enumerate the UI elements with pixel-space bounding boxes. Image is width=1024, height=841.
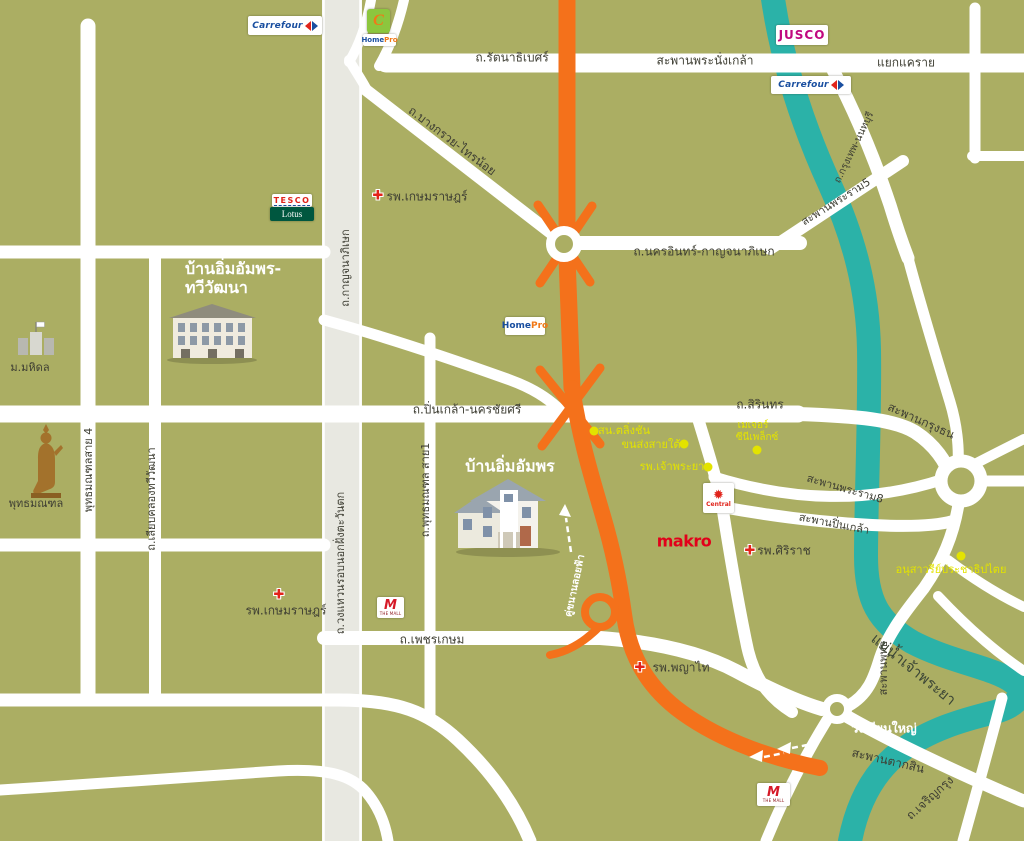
buddha-statue-icon <box>24 424 68 500</box>
lotus-logo: Lotus <box>270 207 314 221</box>
carrefour-mark-icon <box>831 80 844 90</box>
label-phutthamonthon-park: พุทธมณฑล <box>9 498 64 510</box>
c-badge-letter: C <box>373 12 384 30</box>
label-phutthamonthon-sai4-road: พุทธมณฑลสาย 4 <box>83 428 95 512</box>
label-kanchanaphisek-road: ถ.กาญจนาภิเษก <box>340 229 352 306</box>
label-southern-bus-terminal: ขนส่งสายใต้ <box>622 439 681 451</box>
label-western-outer-ring-road: ถ.วงแหวนรอบนอกฝั่งตะวันตก <box>335 492 347 634</box>
carrefour-logo-text: Carrefour <box>778 80 828 90</box>
label-pinklao-nakhonchaisi-road: ถ.ปิ่นเกล้า-นครชัยศรี <box>413 404 522 417</box>
label-kasem-rat-hospital-south: รพ.เกษมราษฎร์ <box>246 605 327 618</box>
makro-logo-text: makro <box>657 532 712 551</box>
label-liap-khlong-thawiwatthana-road: ถ.เลียบคลองทวีวัฒนา <box>146 447 158 550</box>
carrefour-logo-2: Carrefour <box>771 76 851 94</box>
krungthon-roundabout <box>941 461 981 501</box>
poi-dot-southern-terminal <box>680 440 689 449</box>
the-mall-logo-2: M THE MALL <box>757 783 790 806</box>
hospital-cross-icon: ✚ <box>373 189 384 204</box>
label-house-thawi-watthana-line2: ทวีวัฒนา <box>185 280 248 297</box>
label-taling-chan-police: สน.ตลิ่งชัน <box>598 425 650 437</box>
central-star-icon: ✹ <box>713 489 724 502</box>
label-wongwian-yai: วงเวียนใหญ่ <box>851 721 916 734</box>
the-mall-logo-1: M THE MALL <box>377 597 404 618</box>
label-major-cineplex-line2: ซีนีเพล็กซ์ <box>736 433 779 444</box>
label-house-im-amphon: บ้านอิ่มอัมพร <box>465 459 555 476</box>
central-logo: ✹ Central <box>703 483 734 513</box>
homepro-logo-mid: HomePro <box>505 317 545 335</box>
hospital-cross-icon: ✚ <box>635 661 646 676</box>
label-phetkasem-road: ถ.เพชรเกษม <box>400 634 465 647</box>
label-house-thawi-watthana-line1: บ้านอิ่มอัมพร- <box>185 261 281 278</box>
label-major-cineplex-line1: เมเจอร์ <box>738 421 769 432</box>
hospital-cross-icon: ✚ <box>274 588 285 603</box>
wongwian-yai-roundabout <box>826 698 848 720</box>
the-mall-logo-text: THE MALL <box>380 612 402 616</box>
jusco-logo: JUSCO <box>776 25 828 45</box>
label-democracy-monument: อนุสาวรีย์ประชาธิปไตย <box>896 564 1007 576</box>
label-kasem-rat-hospital-north: รพ.เกษมราษฎร์ <box>387 191 468 204</box>
label-phutthamonthon-sai1-road: ถ.พุทธมณฑล สาย1 <box>420 443 432 538</box>
tesco-logo-text: TESCO <box>274 196 311 206</box>
poi-dot-major-cineplex <box>753 446 762 455</box>
homepro-logo-top: HomePro <box>363 34 396 46</box>
route-map: ถ.รัตนาธิเบศร์ สะพานพระนั่งเกล้า แยกแครา… <box>0 0 1024 841</box>
nakhon-in-interchange <box>551 231 578 258</box>
carrefour-logo: Carrefour <box>248 16 322 35</box>
poi-dot-chaophraya-hospital <box>704 463 713 472</box>
label-sirinthon-road: ถ.สิรินทร <box>736 399 783 412</box>
the-mall-logo-text: THE MALL <box>763 799 785 803</box>
poi-dot-democracy-monument <box>957 552 966 561</box>
label-rattanathibet-road: ถ.รัตนาธิเบศร์ <box>475 52 548 65</box>
hospital-cross-icon: ✚ <box>745 544 756 559</box>
label-siriraj-hospital: รพ.ศิริราช <box>757 545 811 558</box>
label-chaophraya-hospital: รพ.เจ้าพระยา <box>640 461 705 473</box>
jusco-logo-text: JUSCO <box>779 28 826 42</box>
label-mahidol-university: ม.มหิดล <box>10 362 49 374</box>
label-nakhon-in-road: ถ.นครอินทร์-กาญจนาภิเษก <box>633 246 774 259</box>
house-im-amphon-illustration <box>452 474 564 558</box>
tesco-logo: TESCO <box>272 194 312 207</box>
carrefour-logo-text: Carrefour <box>252 21 302 31</box>
central-logo-text: Central <box>706 502 731 508</box>
label-yaek-khae-rai: แยกแคราย <box>877 57 935 70</box>
mahidol-university-icon <box>14 320 58 360</box>
house-thawi-watthana-illustration <box>165 300 260 365</box>
lotus-logo-text: Lotus <box>282 209 303 219</box>
label-phayathai-hospital: รพ.พญาไท <box>653 662 710 675</box>
label-phra-nangklao-bridge: สะพานพระนั่งเกล้า <box>657 55 754 68</box>
carrefour-mark-icon <box>305 21 318 31</box>
c-green-badge-logo: C <box>367 9 390 33</box>
